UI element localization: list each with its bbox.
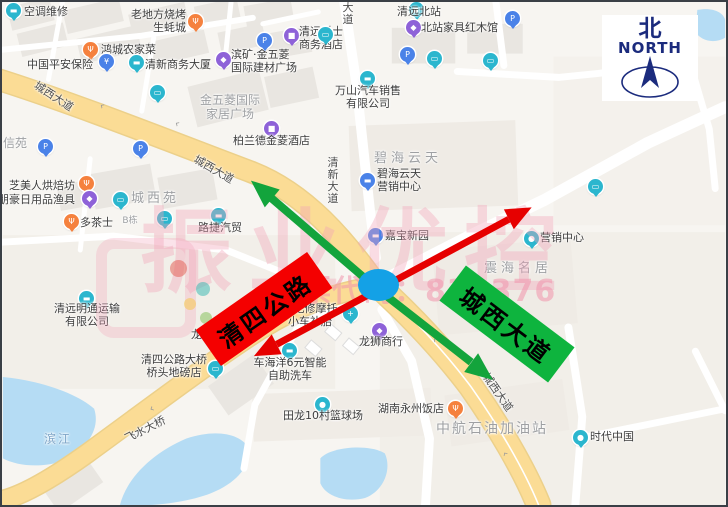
map-pin: P — [38, 139, 53, 154]
food-icon: Ψ — [68, 218, 74, 226]
shopping-icon: ◆ — [376, 327, 382, 335]
map-figure: 金五菱国际家居广场城西苑B栋碧海云天震海名居中航石油加油站滨江信苑龙兴城西大道城… — [0, 0, 728, 507]
road-name-label: 大道 — [342, 2, 354, 26]
poi-label: 清新商务大厦 — [145, 59, 211, 72]
poi-label: 清远明通运输有限公司 — [54, 303, 120, 328]
map-pin: ¥ — [99, 54, 114, 69]
area-label: B栋 — [122, 216, 137, 226]
bus-stop-icon: ▭ — [487, 57, 495, 65]
poi-label: 时代中国 — [590, 431, 634, 444]
parking-icon: P — [262, 37, 267, 45]
poi-label: 车海洋6元智能自助洗车 — [254, 357, 327, 382]
area-label: 城西苑 — [131, 192, 179, 207]
vehicle-icon: ▬ — [10, 7, 18, 15]
bus-stop-icon: ▭ — [322, 31, 330, 39]
parking-icon: P — [405, 51, 410, 59]
map-pin: Ψ — [79, 176, 94, 191]
poi-label: 中国平安保险 — [27, 59, 93, 72]
poi-label: 滨矿·金五菱国际建材广场 — [231, 49, 297, 74]
map-pin: ▬ — [6, 3, 21, 18]
poi-label: 清四公路大桥桥头地磅店 — [141, 354, 207, 379]
poi-label: 老地方烧烤生蚝城 — [131, 9, 186, 34]
poi-label: 碧海云天营销中心 — [377, 168, 421, 193]
map-pin: + — [343, 306, 358, 321]
hotel-icon: ■ — [268, 125, 276, 133]
poi-label: 北站家具红木馆 — [421, 22, 498, 35]
map-pin: ● — [524, 231, 539, 246]
map-pin: ◆ — [406, 20, 421, 35]
bus-stop-icon: ▭ — [117, 196, 125, 204]
food-icon: Ψ — [452, 405, 458, 413]
place-icon: ● — [528, 235, 535, 243]
poi-label: 空调维修 — [24, 6, 68, 19]
map-pin: ▬ — [360, 173, 375, 188]
compass-icon — [617, 56, 683, 100]
vehicle-icon: ▬ — [286, 347, 294, 355]
poi-label: 田龙10村篮球场 — [283, 410, 363, 423]
map-pin: ◆ — [82, 191, 97, 206]
poi-label: 朋豪日用品渔具 — [0, 194, 75, 207]
map-pin: P — [257, 33, 272, 48]
shopping-icon: ◆ — [220, 56, 226, 64]
repair-icon: + — [347, 310, 354, 318]
area-label: 滨江 — [44, 433, 72, 447]
poi-label: 多茶士 — [80, 217, 113, 230]
parking-icon: P — [43, 143, 48, 151]
hotel-icon: ■ — [288, 32, 296, 40]
food-icon: Ψ — [87, 46, 93, 54]
bus-stop-icon: ▭ — [161, 215, 169, 223]
area-label: 震海名居 — [484, 262, 552, 277]
vehicle-icon: ▬ — [364, 75, 372, 83]
poi-label: 清远北站 — [397, 6, 441, 19]
map-pin: Ψ — [188, 14, 203, 29]
north-cn-label: 北 — [639, 17, 662, 41]
vehicle-icon: ▬ — [133, 59, 141, 67]
area-label: 金五菱国际家居广场 — [200, 94, 260, 122]
north-en-label: NORTH — [618, 41, 682, 56]
bus-stop-icon: ▭ — [212, 365, 220, 373]
map-pin: ▭ — [113, 192, 128, 207]
map-pin: ▭ — [483, 53, 498, 68]
poi-label: 万山汽车销售有限公司 — [335, 85, 401, 110]
parking-icon: P — [510, 15, 515, 23]
area-label: 信苑 — [3, 137, 27, 151]
map-pin: Ψ — [448, 401, 463, 416]
food-icon: Ψ — [83, 180, 89, 188]
map-pin: Ψ — [64, 214, 79, 229]
bus-stop-icon: ▭ — [431, 55, 439, 63]
area-label: 碧海云天 — [374, 152, 442, 167]
map-pin: ▭ — [427, 51, 442, 66]
poi-label: 龙狮商行 — [359, 336, 403, 349]
map-pin: ▭ — [588, 179, 603, 194]
map-pin: P — [505, 11, 520, 26]
bank-icon: ¥ — [104, 58, 109, 66]
shopping-icon: ◆ — [410, 24, 416, 32]
bus-stop-icon: ▭ — [592, 183, 600, 191]
north-compass-badge: 北 NORTH — [602, 15, 698, 101]
poi-label: 柏兰德金菱酒店 — [233, 135, 310, 148]
parking-icon: P — [138, 145, 143, 153]
vehicle-icon: ▬ — [364, 177, 372, 185]
vehicle-icon: ▬ — [215, 212, 223, 220]
map-pin: ▬ — [129, 55, 144, 70]
place-icon: ● — [319, 401, 326, 409]
map-pin: ▭ — [157, 211, 172, 226]
food-icon: Ψ — [192, 18, 198, 26]
poi-label: 嘉宝新园 — [385, 230, 429, 243]
map-pin: ▬ — [368, 228, 383, 243]
poi-label: 芝美人烘焙坊 — [9, 180, 75, 193]
map-pin: Ψ — [83, 42, 98, 57]
place-icon: ● — [577, 434, 584, 442]
map-pin: P — [133, 141, 148, 156]
bus-stop-icon: ▭ — [154, 89, 162, 97]
shopping-icon: ◆ — [86, 195, 92, 203]
map-pin: ● — [573, 430, 588, 445]
map-pin: P — [400, 47, 415, 62]
map-pin: ▭ — [318, 27, 333, 42]
poi-label: 营销中心 — [540, 232, 584, 245]
vehicle-icon: ▬ — [372, 232, 380, 240]
poi-label: 湖南永州饭店 — [378, 403, 444, 416]
road-name-label: 清新大道 — [327, 157, 339, 205]
intersection-marker — [358, 269, 399, 301]
map-pin: ◆ — [216, 52, 231, 67]
area-label: 中航石油加油站 — [436, 421, 548, 437]
map-pin: ▭ — [150, 85, 165, 100]
poi-label: 路捷汽贸 — [198, 222, 242, 235]
map-pin: ■ — [284, 28, 299, 43]
